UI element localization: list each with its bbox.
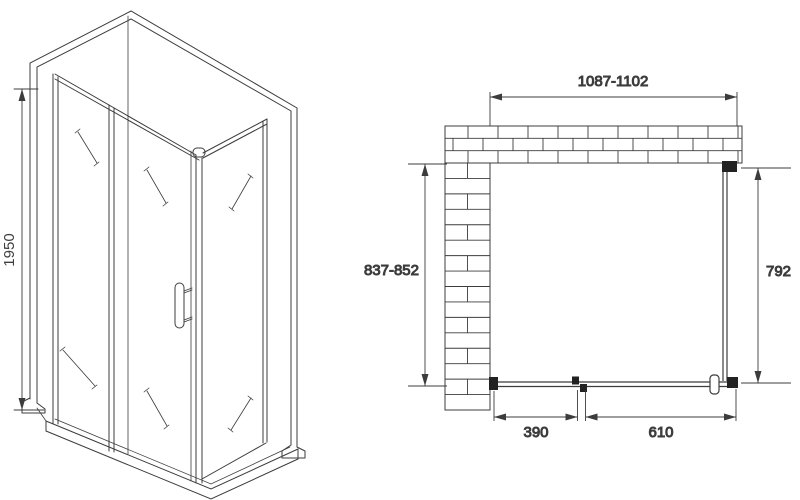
arrow-right-icon <box>725 94 737 101</box>
arrow-left-icon <box>494 414 506 421</box>
width-dimension <box>490 92 737 126</box>
isometric-view: 1950 <box>1 11 305 499</box>
arrow-left-icon <box>490 94 502 101</box>
door-handle-plan <box>710 375 719 394</box>
wall-bracket-left <box>489 377 498 390</box>
plan-view: 1087-1102 837-852 792 390 610 <box>364 73 791 441</box>
arrow-down-icon <box>755 371 762 383</box>
arrow-right-icon <box>724 414 736 421</box>
height-dimension <box>14 89 44 410</box>
panel-connector <box>572 377 587 393</box>
height-dim-label: 1950 <box>1 233 18 266</box>
depth-dim-label: 837-852 <box>364 262 419 279</box>
arrow-down-icon <box>19 398 26 410</box>
shower-tray <box>37 408 298 499</box>
drawing-canvas: 1950 <box>0 0 800 500</box>
bottom-dimensions <box>494 389 736 421</box>
corner-connector <box>727 377 738 388</box>
side-dim-label: 792 <box>766 263 791 280</box>
arrow-up-icon <box>19 89 26 101</box>
glass-reflection-marks <box>60 129 253 432</box>
width-dim-label: 1087-1102 <box>578 73 649 90</box>
arrow-right-icon <box>566 414 578 421</box>
technical-drawing: 1950 <box>0 0 800 500</box>
brick-wall-top <box>445 126 742 163</box>
arrow-left-icon <box>586 414 598 421</box>
glass-front-plan <box>497 382 737 387</box>
glass-front-3d <box>53 74 205 483</box>
arrow-up-icon <box>755 168 762 180</box>
glass-side-plan <box>723 172 727 381</box>
wall-bracket-top <box>722 161 737 172</box>
panel-dim-label: 610 <box>648 424 673 441</box>
arrow-down-icon <box>422 374 429 386</box>
arrow-up-icon <box>422 164 429 176</box>
brick-wall-left <box>445 163 490 410</box>
door-handle-3d <box>175 283 192 328</box>
door-dim-label: 390 <box>523 424 548 441</box>
